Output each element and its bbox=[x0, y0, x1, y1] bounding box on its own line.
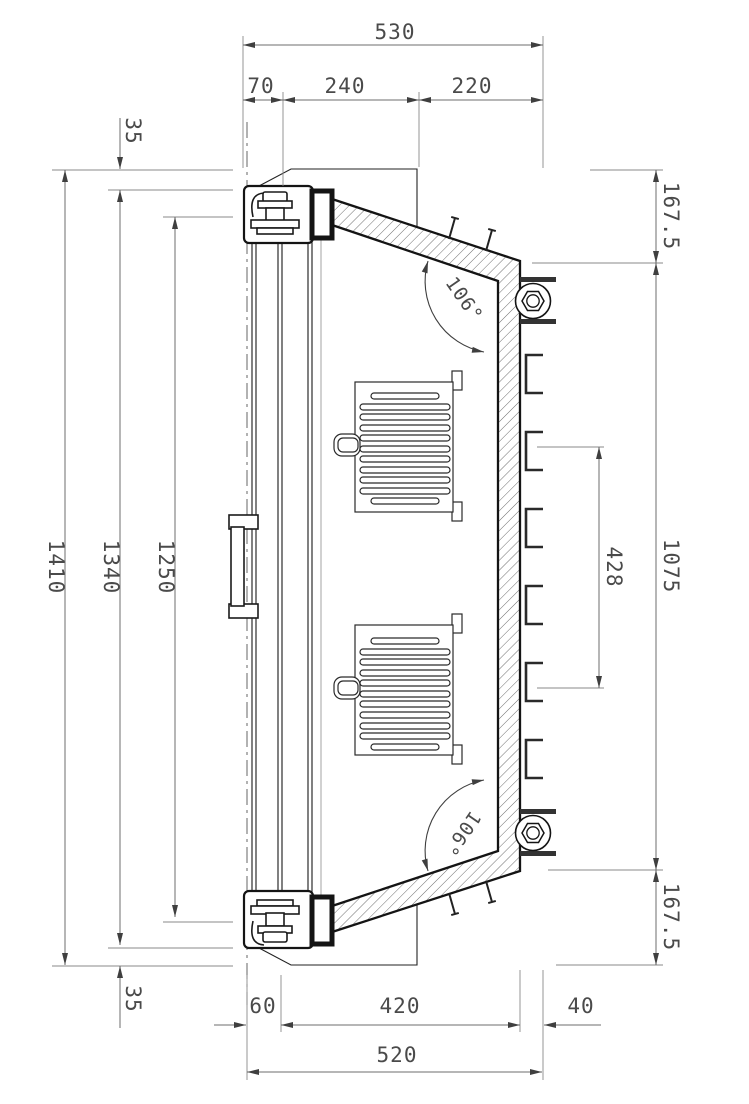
technical-drawing: 106° 106° bbox=[0, 0, 749, 1104]
top-latch bbox=[244, 186, 332, 243]
dim-bottom-seg2: 420 bbox=[380, 994, 421, 1018]
dim-right-top: 167.5 bbox=[659, 182, 683, 250]
vent-grille-bottom bbox=[334, 614, 462, 764]
angle-annotations: 106° 106° bbox=[425, 261, 487, 871]
bottom-bolt-assembly bbox=[516, 809, 557, 856]
outer-frame bbox=[259, 169, 417, 965]
dim-top-seg1: 70 bbox=[247, 74, 274, 98]
top-bolt-assembly bbox=[516, 277, 557, 324]
dim-left-overall: 1410 bbox=[44, 540, 68, 595]
dim-top-seg3: 220 bbox=[452, 74, 493, 98]
bottom-latch bbox=[244, 891, 332, 948]
angle-label-bottom: 106° bbox=[439, 807, 486, 860]
vent-grille-top bbox=[334, 371, 462, 521]
dim-right-span: 1075 bbox=[659, 539, 683, 594]
door-handle bbox=[229, 515, 258, 618]
dim-right-bottom: 167.5 bbox=[659, 883, 683, 951]
grille-slots bbox=[360, 638, 450, 750]
channel-clips bbox=[526, 355, 543, 778]
dim-left-inner: 1340 bbox=[99, 540, 123, 595]
dim-bottom-seg3: 40 bbox=[567, 994, 594, 1018]
dim-left-panel: 1250 bbox=[154, 540, 178, 595]
angle-label-top: 106° bbox=[441, 273, 488, 326]
seal-block bbox=[312, 191, 332, 238]
dim-left-offset-top: 35 bbox=[121, 117, 145, 144]
dim-right-clip-span: 428 bbox=[602, 547, 626, 588]
wall-section-hatched bbox=[332, 199, 520, 932]
dim-top-seg2: 240 bbox=[325, 74, 366, 98]
dim-top-overall: 530 bbox=[375, 20, 416, 44]
dim-left-offset-bottom: 35 bbox=[121, 985, 145, 1012]
door-leaf bbox=[250, 211, 321, 931]
dim-bottom-overall: 520 bbox=[377, 1043, 418, 1067]
drawing-sheet: 106° 106° bbox=[0, 0, 749, 1104]
dim-bottom-seg1: 60 bbox=[249, 994, 276, 1018]
seal-block bbox=[312, 897, 332, 944]
